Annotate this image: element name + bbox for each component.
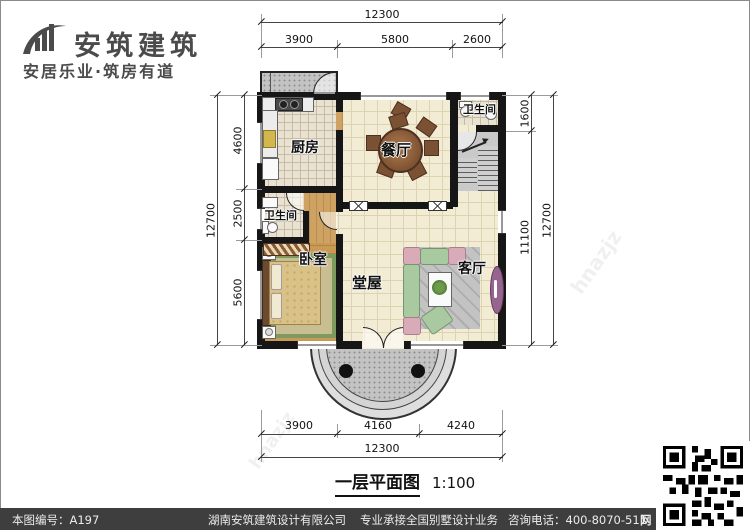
dim-left-seg: 5600 [232,273,245,313]
dim-right-seg: 1600 [519,94,532,134]
dim-bottom-seg: 4240 [431,419,491,432]
qr-code [656,441,750,530]
dim-bottom-seg: 3900 [269,419,329,432]
wall [336,234,343,341]
window [410,341,464,349]
extension-line [337,40,338,58]
extension-line [236,189,262,190]
interior-window [349,201,368,211]
stove-burner [290,100,299,109]
footer-phone: 咨询电话：400-8070-511 [508,512,647,528]
porch-column [411,364,425,378]
dim-bottom-seg: 4160 [348,419,408,432]
wall [336,100,343,112]
chair [424,140,439,156]
extension-line [236,240,262,241]
dim-right-seg: 11100 [519,218,532,258]
sofa [420,248,449,265]
label-hall: 堂屋 [352,272,382,293]
company-logo-icon [20,14,70,60]
sofa [403,264,420,318]
wall [257,186,343,193]
porch-column [339,364,353,378]
drawing-number: 本图编号：A197 [12,512,99,528]
footer-service: 专业承接全国别墅设计业务 [360,512,498,528]
dimension-line [261,434,503,435]
caption-title: 一层平面图 [335,468,420,497]
doorway-kitchen-dining [336,112,343,130]
tv [490,266,504,314]
toilet [267,222,278,233]
dim-top-seg: 5800 [365,33,425,46]
interior-window [428,201,447,211]
dimension-line [261,22,503,23]
front-porch [310,349,457,420]
stair-flight [478,146,498,191]
dim-right-total: 12700 [541,201,554,241]
stove-burner [279,100,288,109]
dim-left-seg: 2500 [232,194,245,234]
label-bath-top: 卫生间 [463,101,496,117]
label-bedroom: 卧室 [299,249,327,269]
pillow [271,293,282,319]
label-living: 客厅 [458,258,486,278]
lamp [265,328,273,336]
wall [450,125,458,132]
label-kitchen: 厨房 [291,137,319,157]
company-tagline: 安居乐业·筑房有道 [23,58,175,82]
armchair [403,247,421,265]
dim-top-seg: 2600 [447,33,507,46]
dim-left-seg: 4600 [232,121,245,161]
window [498,210,506,234]
kitchen-appliance [262,158,279,180]
floorplan-page: 安筑建筑 安居乐业·筑房有道 安筑建筑 安筑建筑 hnazjz hnazjz [0,0,750,530]
window [460,92,490,100]
pillow [271,264,282,290]
label-bath-left: 卫生间 [264,207,297,223]
dimension-line [261,47,503,48]
kitchen-sink [263,130,276,148]
wall [450,100,458,207]
caption-scale: 1:100 [432,474,475,492]
armchair [403,317,421,335]
tv-screen [494,280,497,298]
plant [432,280,447,295]
caption: 一层平面图 1:100 [335,468,475,497]
dimension-line [261,457,503,458]
dim-top-seg: 3900 [269,33,329,46]
stair-flight [458,158,477,184]
dim-left-total: 12700 [205,201,218,241]
window [360,92,447,100]
back-porch-step [270,73,271,92]
wall [476,125,506,132]
footer-company: 湖南安筑建筑设计有限公司 [208,512,346,528]
watermark: hnazjz [245,408,299,473]
window [297,341,337,349]
web-icon: 网 [640,512,652,528]
wall [336,130,343,212]
dim-top-total: 12300 [342,8,422,21]
footer-bar: 本图编号：A197 湖南安筑建筑设计有限公司 专业承接全国别墅设计业务 咨询电话… [0,508,750,530]
watermark: hnazjz [566,226,627,299]
dim-bottom-total: 12300 [342,442,422,455]
label-dining: 餐厅 [381,139,411,160]
